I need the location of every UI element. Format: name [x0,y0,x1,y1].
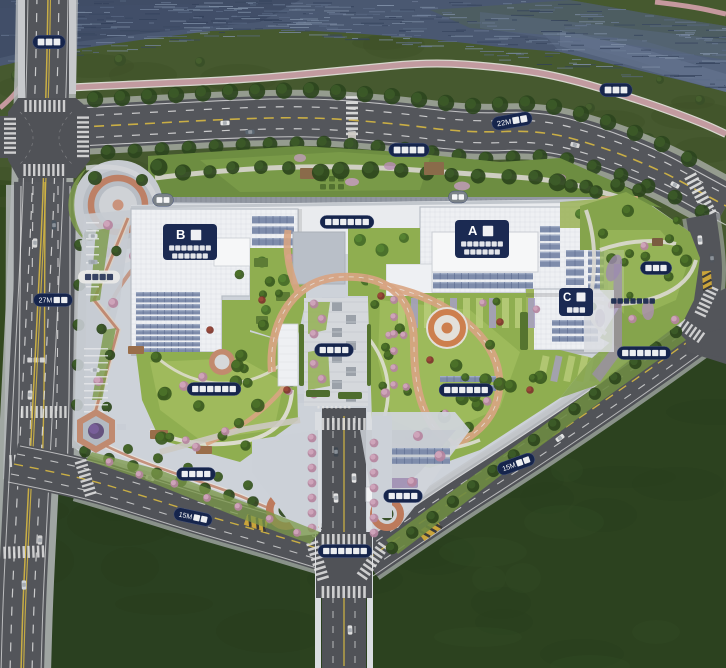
svg-text:B: B [176,227,185,242]
svg-text:27M: 27M [39,298,53,305]
svg-text:C: C [563,292,571,304]
svg-text:A: A [468,223,478,238]
